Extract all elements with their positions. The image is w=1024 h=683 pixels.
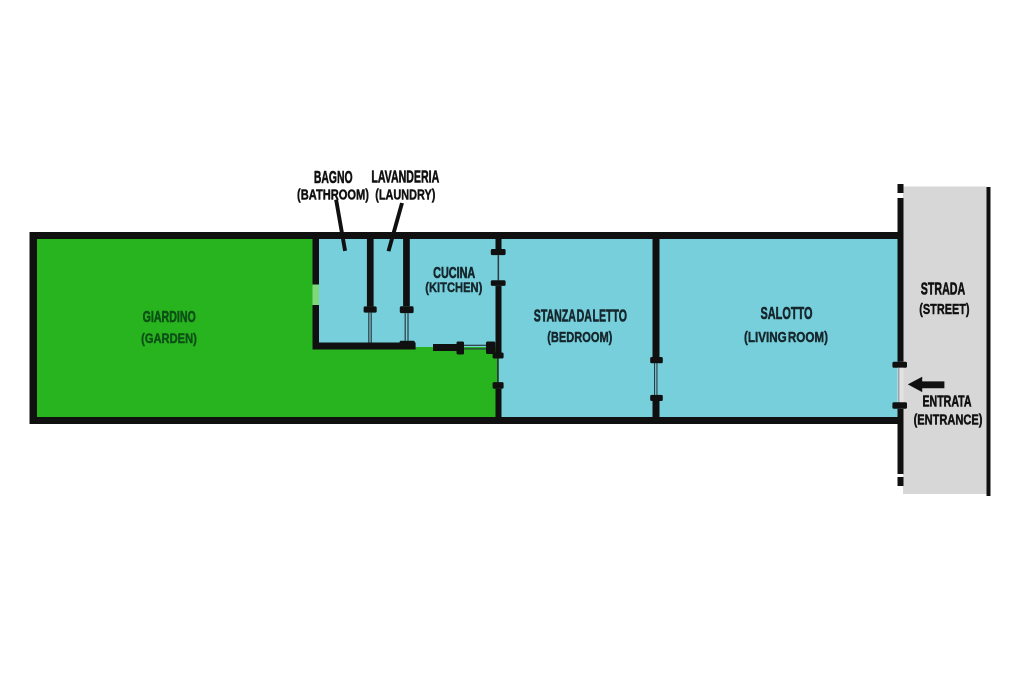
svg-text:(KITCHEN): (KITCHEN) — [425, 280, 482, 295]
svg-text:BAGNO: BAGNO — [314, 168, 353, 187]
svg-text:(BATHROOM): (BATHROOM) — [297, 187, 369, 203]
svg-text:(GARDEN): (GARDEN) — [141, 331, 197, 347]
svg-text:STANZA DA LETTO: STANZA DA LETTO — [534, 307, 627, 326]
svg-text:GIARDINO: GIARDINO — [143, 309, 196, 326]
svg-text:(STREET): (STREET) — [919, 302, 969, 318]
svg-text:(LIVING ROOM): (LIVING ROOM) — [744, 330, 828, 346]
svg-text:LAVANDERIA: LAVANDERIA — [371, 167, 439, 186]
svg-text:STRADA: STRADA — [921, 279, 965, 299]
svg-text:ENTRATA: ENTRATA — [923, 394, 972, 411]
svg-text:(LAUNDRY): (LAUNDRY) — [375, 188, 435, 204]
svg-text:SALOTTO: SALOTTO — [761, 304, 813, 323]
svg-text:(ENTRANCE): (ENTRANCE) — [914, 413, 983, 429]
svg-text:(BEDROOM): (BEDROOM) — [547, 330, 612, 346]
